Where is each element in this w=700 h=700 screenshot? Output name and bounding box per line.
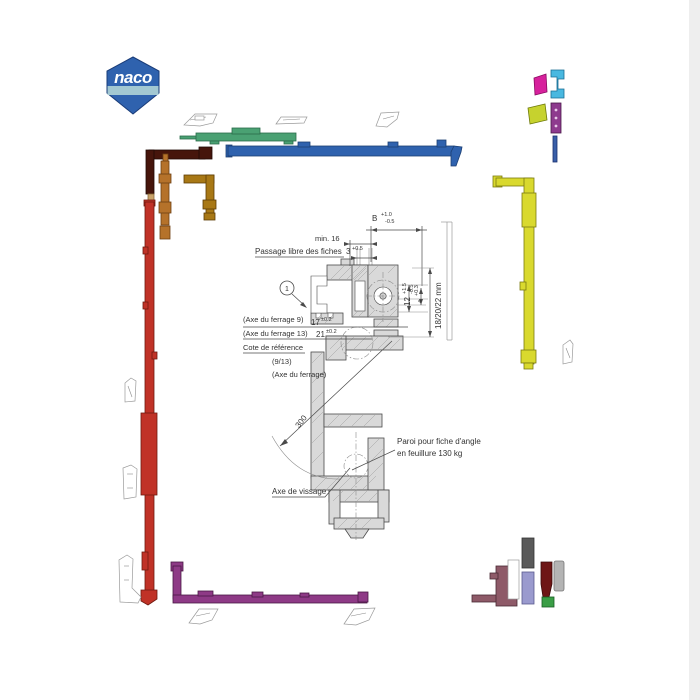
axe9-label: (Axe du ferrage 9) — [243, 315, 304, 324]
dim-b-value: B — [372, 214, 377, 223]
pink-cover-cap — [534, 74, 547, 95]
green-latch-bar — [180, 128, 296, 144]
dim-b-tol-plus: +1.0 — [381, 212, 392, 218]
outline-part-left-upper — [125, 378, 136, 402]
ratio-label: (9/13) — [272, 357, 292, 366]
bottom-right-parts-cluster — [472, 538, 564, 607]
yellow-espagnolette — [493, 176, 536, 369]
dark-red-keeper-part — [541, 562, 552, 597]
dim-b-tol-minus: -0.5 — [385, 219, 394, 225]
logo-band — [108, 86, 159, 95]
outline-part-bottom-right — [344, 608, 375, 625]
green-clip-part — [542, 597, 554, 607]
logo-text: naco — [114, 68, 152, 87]
blue-top-bar — [226, 140, 462, 166]
gray-strip-part — [522, 538, 534, 568]
cyan-handle-piece — [551, 70, 564, 98]
dim-depth-label: 18/20/22 mm — [434, 282, 443, 329]
passage-label: Passage libre des fiches — [255, 247, 342, 256]
outline-part-right — [563, 340, 573, 364]
outline-part-left-lower — [119, 555, 141, 603]
blue-rod — [553, 136, 557, 162]
dim-min16-label: min. 16 — [315, 234, 340, 243]
lavender-strip-part — [522, 572, 534, 604]
balloon-1: 1 — [280, 281, 307, 308]
outline-part-bottom-left — [189, 609, 218, 624]
dim-21-value: 21 — [316, 330, 325, 339]
dim-radius-value: 300 — [294, 413, 310, 429]
white-strip-part — [508, 560, 519, 599]
outline-part-top-middle — [276, 117, 307, 124]
dim-17-value: 17 — [311, 318, 320, 327]
balloon-number: 1 — [285, 286, 289, 293]
dim-21-tol: ±0.2 — [326, 329, 337, 335]
dim-4-tol: +0.3 — [414, 285, 420, 296]
dim-17-tol: ±0.2 — [321, 317, 332, 323]
red-espagnolette — [141, 200, 157, 605]
silver-cylinder-part — [554, 561, 564, 591]
top-right-parts-cluster — [528, 70, 564, 162]
catalog-page: naco — [0, 0, 700, 700]
orange-strip — [159, 154, 171, 239]
purple-bottom-bar — [171, 562, 368, 603]
haco-logo: naco — [107, 57, 159, 114]
cross-section-drawing: B +1.0 -0.5 min. 16 Passage libre des fi… — [243, 212, 481, 540]
axe13-label: (Axe du ferrage 13) — [243, 329, 308, 338]
diagram-canvas: naco — [0, 0, 700, 700]
axe-ferrage-label: (Axe du ferrage) — [272, 370, 327, 379]
paroi-label-line1: Paroi pour fiche d'angle — [397, 437, 481, 446]
outline-part-top-left — [184, 114, 217, 126]
dim-12-tol-plus: +1.5 — [402, 283, 408, 294]
vissage-label: Axe de vissage — [272, 487, 327, 496]
page-edge — [689, 0, 700, 700]
dim-gap-value: 3 — [346, 247, 351, 256]
paroi-label-line2: en feuillure 130 kg — [397, 449, 462, 458]
dim-12-value: 12 — [403, 297, 412, 306]
purple-keeper-strip — [551, 103, 561, 133]
dim-4-value: 4 — [418, 300, 424, 303]
gold-corner-guide — [184, 175, 216, 220]
dimension-passage: Passage libre des fiches 3 +0.5 — [255, 246, 377, 260]
outline-part-left-middle — [123, 465, 137, 499]
outline-part-top-right — [376, 112, 399, 127]
chartreuse-wedge — [528, 104, 547, 124]
cote-reference-label: Cote de référence — [243, 343, 303, 352]
dim-gap-tol: +0.5 — [352, 246, 363, 252]
